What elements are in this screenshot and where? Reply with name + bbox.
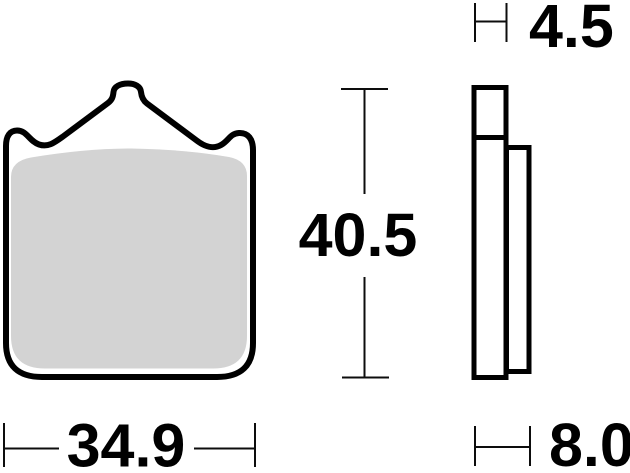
brake-pad-drawing-canvas: 34.9 40.5 4.5 8.0	[0, 0, 630, 473]
height-dimension: 40.5	[299, 89, 418, 378]
backplate-thickness-label: 4.5	[529, 0, 614, 60]
pad-side-backplate	[474, 88, 506, 378]
total-thickness-label: 8.0	[549, 411, 630, 473]
pad-friction-surface	[11, 149, 247, 369]
width-dimension: 34.9	[4, 412, 255, 473]
height-dimension-label: 40.5	[299, 201, 418, 269]
front-view	[6, 84, 253, 378]
backplate-thickness-dimension: 4.5	[475, 0, 614, 60]
brake-pad-technical-drawing: 34.9 40.5 4.5 8.0	[0, 0, 630, 473]
total-thickness-dimension: 8.0	[475, 411, 630, 473]
side-view	[472, 88, 530, 378]
width-dimension-label: 34.9	[67, 412, 186, 473]
pad-side-friction-layer	[507, 148, 530, 372]
